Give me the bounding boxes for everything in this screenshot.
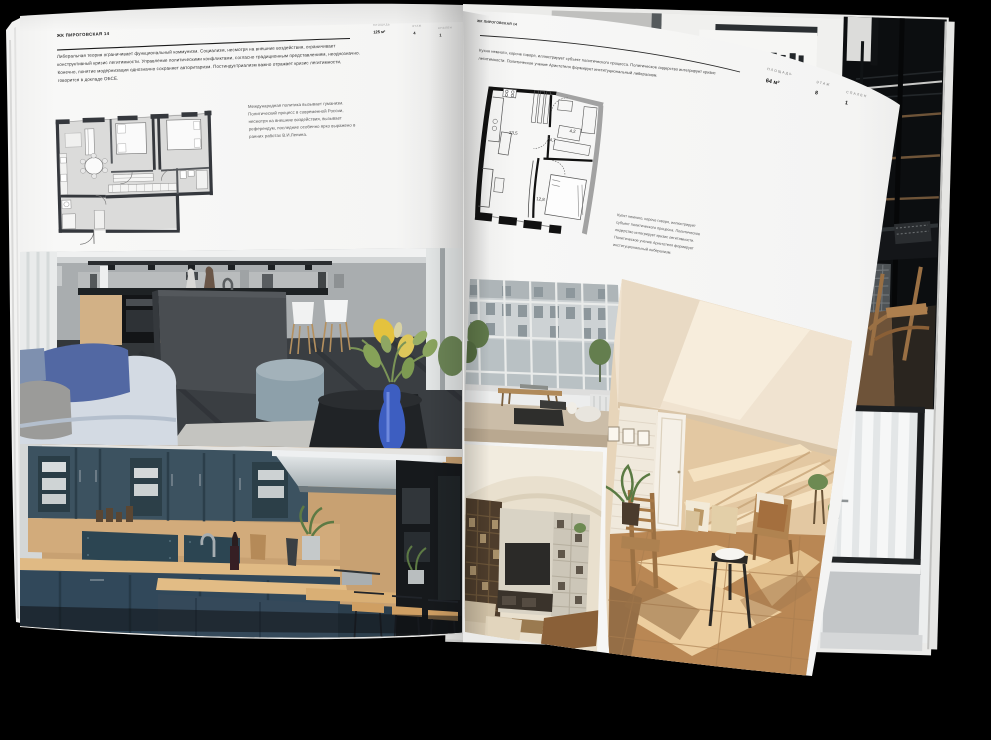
- svg-text:4,7: 4,7: [549, 137, 556, 143]
- svg-text:4,2: 4,2: [569, 128, 576, 134]
- svg-text:12,8: 12,8: [536, 196, 546, 202]
- svg-text:23,5: 23,5: [509, 130, 519, 136]
- svg-text:125 м²: 125 м²: [373, 29, 386, 35]
- svg-text:ЭТАЖ: ЭТАЖ: [412, 24, 422, 28]
- svg-text:ПЛОЩАДЬ: ПЛОЩАДЬ: [373, 22, 390, 27]
